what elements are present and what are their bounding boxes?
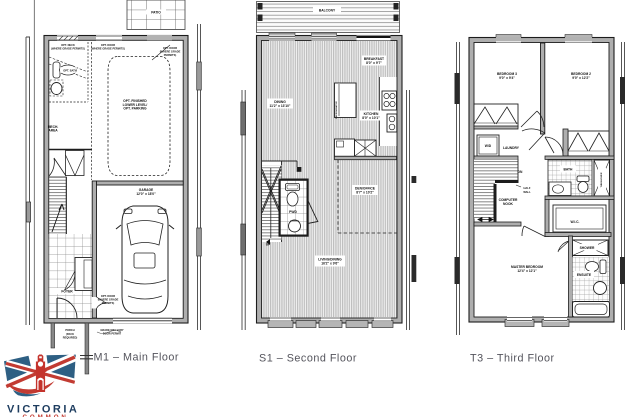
- svg-text:BATH: BATH: [564, 168, 574, 172]
- svg-text:PERMITS): PERMITS): [164, 53, 177, 57]
- svg-text:12'4" x 12'1": 12'4" x 12'1": [517, 269, 537, 273]
- svg-text:DOOR PERMIT: DOOR PERMIT: [103, 331, 122, 335]
- svg-text:PATIO: PATIO: [151, 11, 161, 15]
- svg-text:OPT. DECK: OPT. DECK: [61, 43, 75, 47]
- svg-text:12'0" x 18'0": 12'0" x 18'0": [136, 192, 156, 196]
- svg-text:16'2" x 9'6": 16'2" x 9'6": [321, 262, 339, 266]
- svg-text:9'0" x 9'4": 9'0" x 9'4": [499, 76, 515, 80]
- svg-text:(WHERE GRADE: (WHERE GRADE: [98, 297, 119, 301]
- svg-text:OPT. BATH: OPT. BATH: [63, 69, 77, 73]
- svg-text:OPT. DOOR: OPT. DOOR: [101, 294, 115, 298]
- svg-text:PWD: PWD: [289, 210, 297, 214]
- svg-text:FOYER: FOYER: [61, 290, 73, 294]
- svg-text:8'7" x 10'2": 8'7" x 10'2": [356, 191, 374, 195]
- svg-text:8'0" x 10'1": 8'0" x 10'1": [362, 116, 380, 120]
- svg-text:W/D: W/D: [485, 144, 492, 148]
- svg-text:OPT. DOOR: OPT. DOOR: [101, 43, 115, 47]
- svg-text:PORCH: PORCH: [65, 328, 74, 332]
- svg-text:REQUIRED): REQUIRED): [63, 336, 78, 340]
- svg-text:11'2" x 13'10": 11'2" x 13'10": [269, 104, 290, 108]
- svg-text:S1 – Second Floor: S1 – Second Floor: [259, 353, 357, 365]
- svg-text:LAUNDRY: LAUNDRY: [503, 146, 520, 150]
- svg-text:M1 – Main Floor: M1 – Main Floor: [94, 352, 180, 364]
- svg-text:T3 – Third Floor: T3 – Third Floor: [470, 353, 555, 365]
- svg-text:W.I.C.: W.I.C.: [571, 220, 580, 224]
- svg-text:8'0" x 9'7": 8'0" x 9'7": [366, 61, 382, 65]
- svg-text:PERMITS): PERMITS): [102, 301, 115, 305]
- svg-text:(WHERE GRADE: (WHERE GRADE: [160, 49, 181, 53]
- svg-text:9'0" x 12'2": 9'0" x 12'2": [572, 76, 590, 80]
- svg-text:WALL: WALL: [523, 190, 531, 194]
- svg-text:BALCONY: BALCONY: [319, 9, 336, 13]
- svg-text:DN: DN: [518, 170, 523, 174]
- svg-text:(PACK: (PACK: [66, 332, 74, 336]
- svg-text:GRADE MAY VARY: GRADE MAY VARY: [100, 328, 123, 332]
- svg-text:OPT. DOOR: OPT. DOOR: [163, 46, 177, 50]
- svg-text:AREA: AREA: [48, 128, 58, 132]
- svg-text:(WHERE GRADE PERMITS): (WHERE GRADE PERMITS): [51, 46, 85, 50]
- svg-text:TUB/SHOWER: TUB/SHOWER: [601, 172, 603, 187]
- svg-text:NOOK: NOOK: [503, 202, 514, 206]
- svg-text:OPT. PARKING: OPT. PARKING: [123, 107, 147, 111]
- svg-text:(WHERE GRADE PERMITS): (WHERE GRADE PERMITS): [91, 46, 125, 50]
- svg-text:ENSUITE: ENSUITE: [577, 273, 592, 277]
- svg-text:SHOWER: SHOWER: [580, 246, 595, 250]
- svg-text:REFRIGERATOR: REFRIGERATOR: [335, 101, 338, 119]
- svg-text:HALF: HALF: [524, 186, 531, 190]
